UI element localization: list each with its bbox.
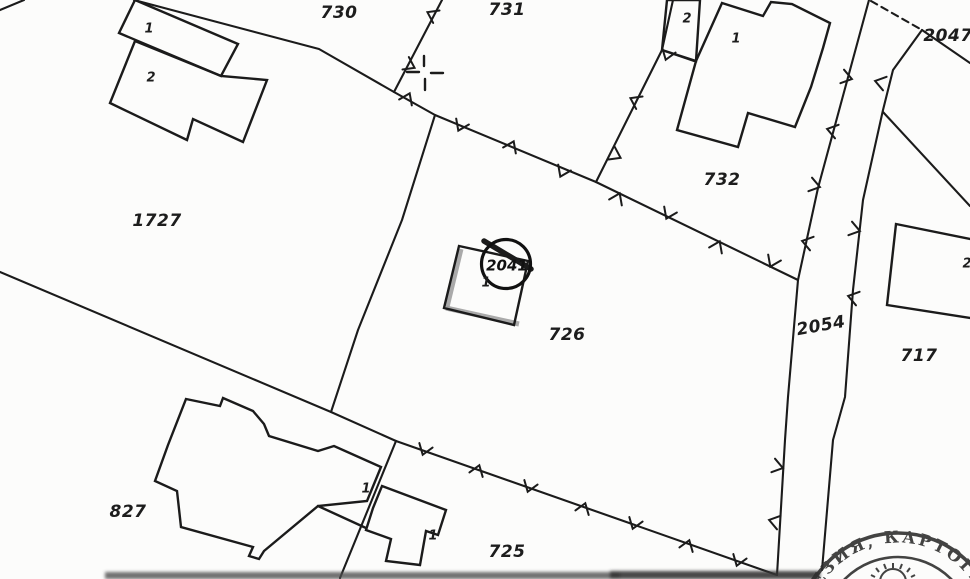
parcel-label-732: 732 bbox=[704, 170, 741, 190]
building-number-726-1: 1 bbox=[481, 276, 490, 291]
building-number-732-1: 1 bbox=[731, 32, 740, 47]
parcel-label-827: 827 bbox=[110, 502, 147, 522]
building-number-tl-1: 1 bbox=[144, 22, 153, 37]
building-number-725-1: 1 bbox=[428, 529, 437, 544]
survey-point-number: 2041 bbox=[486, 257, 528, 275]
building-number-732-2: 2 bbox=[682, 12, 691, 27]
parcel-label-1727: 1727 bbox=[132, 211, 181, 231]
parcel-label-2047: 2047 bbox=[923, 26, 970, 46]
scan-edge-band bbox=[105, 571, 820, 579]
building-number-717-2: 2 bbox=[962, 257, 970, 272]
parcel-label-731: 731 bbox=[489, 0, 526, 20]
parcel-label-726: 726 bbox=[549, 325, 586, 345]
parcel-label-725: 725 bbox=[489, 542, 526, 562]
building-number-827-1: 1 bbox=[361, 482, 370, 497]
building-number-tl-2: 2 bbox=[146, 71, 155, 86]
cadastral-map: 730 731 732 1727 726 725 827 717 2047 20… bbox=[0, 0, 970, 579]
parcel-label-730: 730 bbox=[321, 3, 358, 23]
cadastral-map-svg: 730 731 732 1727 726 725 827 717 2047 20… bbox=[0, 0, 970, 579]
parcel-label-717: 717 bbox=[901, 346, 938, 366]
